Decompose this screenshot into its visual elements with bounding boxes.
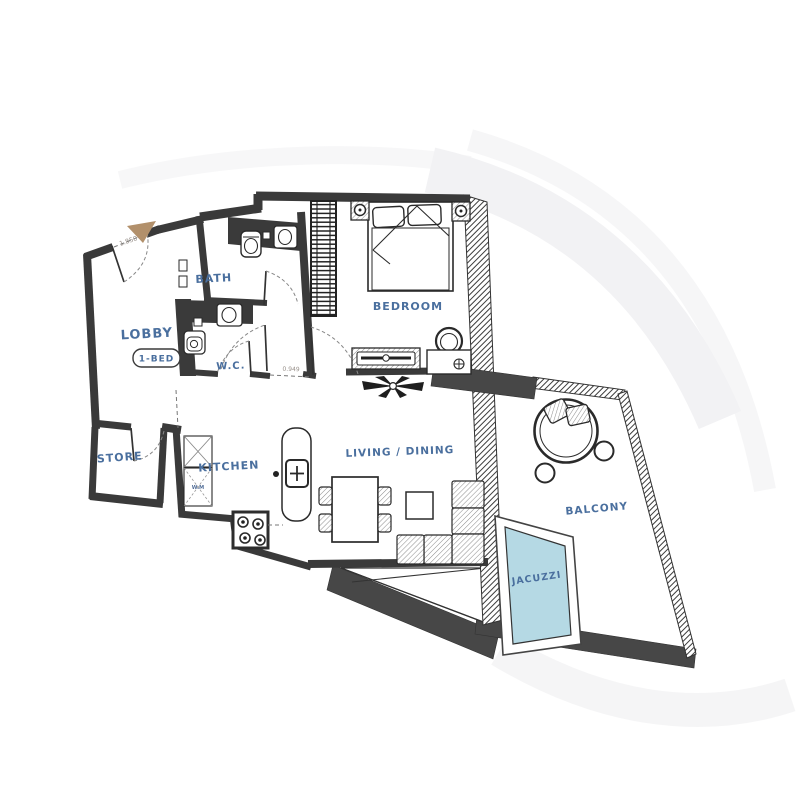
wc-label: W.C. xyxy=(216,360,246,372)
balcony-furniture xyxy=(495,398,614,655)
daybed-cushion xyxy=(565,404,590,426)
kitchen-label: KITCHEN xyxy=(198,458,260,474)
stool xyxy=(536,464,555,483)
living-dining-furniture xyxy=(319,477,484,564)
coffee-table xyxy=(406,492,433,519)
living-dining-label: LIVING / DINING xyxy=(345,444,454,460)
wardrobe xyxy=(311,201,336,316)
floor-plan-drawing: W.M xyxy=(0,0,800,800)
dining-chair xyxy=(378,487,391,505)
balcony-right-wall xyxy=(618,391,696,658)
bath-door xyxy=(264,271,298,305)
ceiling-fan-icon xyxy=(362,376,424,398)
balcony-label: BALCONY xyxy=(565,500,629,517)
store-label: STORE xyxy=(96,449,143,465)
balcony-top-wall xyxy=(530,377,625,400)
stool xyxy=(595,442,614,461)
entrance-width-dimension: 1.850 xyxy=(118,234,138,248)
dining-chair xyxy=(319,487,332,505)
towel-rail xyxy=(179,276,187,287)
bedroom-door xyxy=(311,327,358,375)
stove xyxy=(233,512,268,548)
bath-label: BATH xyxy=(195,271,232,286)
floor-plan-canvas: W.M xyxy=(0,0,800,800)
side-table xyxy=(427,350,471,374)
double-bed xyxy=(368,202,453,291)
unit-type-badge-label: 1-BED xyxy=(139,355,174,365)
hall-opening-dimension: 0.949 xyxy=(282,366,300,374)
towel-rail xyxy=(179,260,187,271)
nightstand-left xyxy=(351,201,369,220)
dining-chair xyxy=(319,514,332,532)
nightstand-right xyxy=(452,202,470,221)
tv-console xyxy=(352,348,420,369)
dining-chair xyxy=(378,514,391,532)
washing-machine-label: W.M xyxy=(192,485,204,491)
kitchen-fixtures: W.M xyxy=(184,428,311,548)
lobby-label: LOBBY xyxy=(120,326,173,344)
unit-type-badge: 1-BED xyxy=(133,349,180,367)
dining-table xyxy=(332,477,378,542)
bedroom-label: BEDROOM xyxy=(373,300,443,313)
jacuzzi xyxy=(495,516,581,655)
